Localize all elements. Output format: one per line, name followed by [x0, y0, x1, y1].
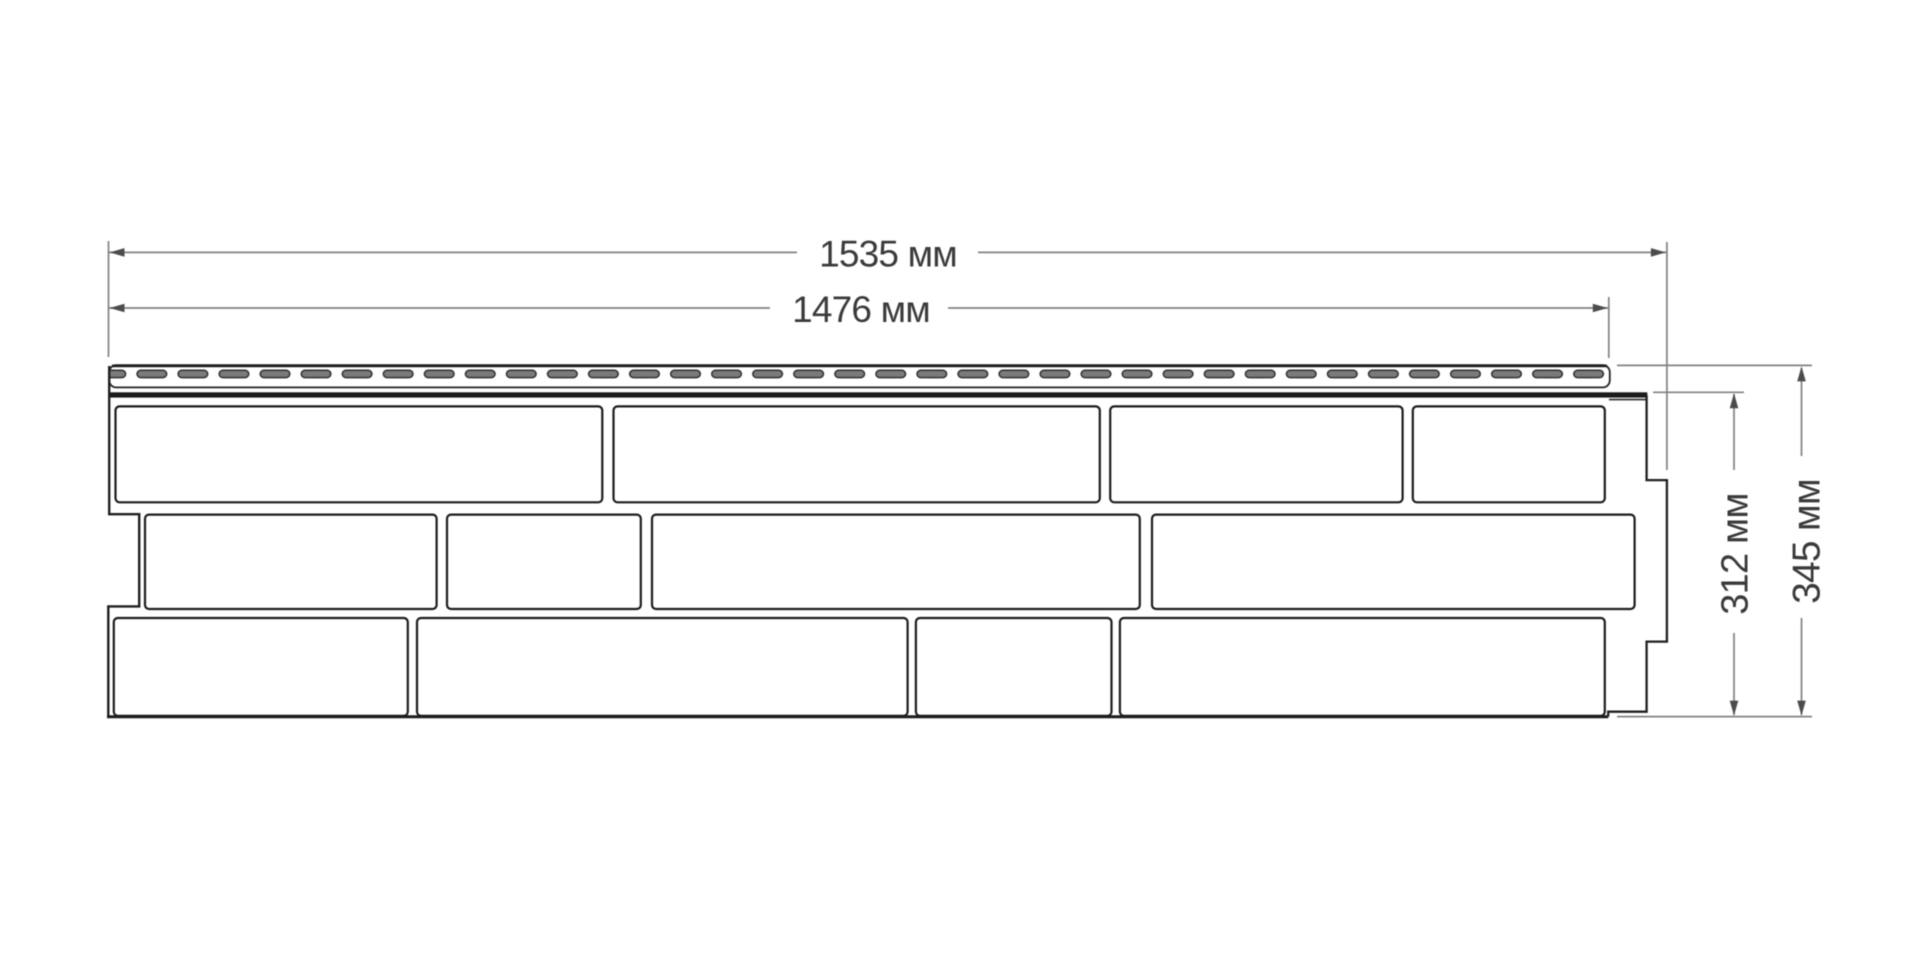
svg-text:1476 мм: 1476 мм	[792, 289, 930, 330]
svg-text:345 мм: 345 мм	[1786, 479, 1829, 604]
svg-text:1535 мм: 1535 мм	[819, 234, 957, 275]
svg-text:312 мм: 312 мм	[1715, 493, 1757, 614]
